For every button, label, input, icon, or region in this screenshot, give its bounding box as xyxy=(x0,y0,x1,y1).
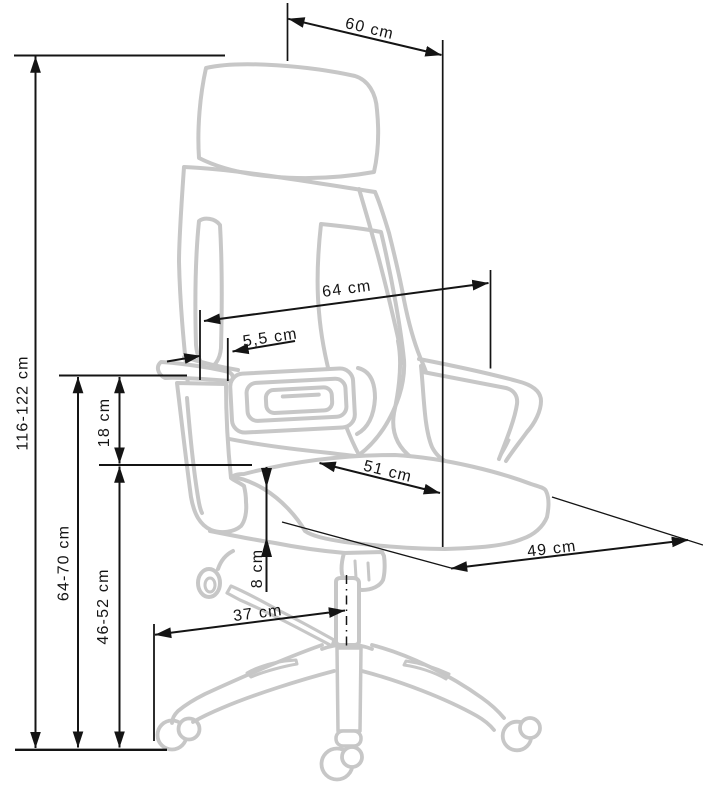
svg-text:46-52 cm: 46-52 cm xyxy=(95,568,112,644)
svg-text:64-70 cm: 64-70 cm xyxy=(56,525,73,601)
svg-text:8 cm: 8 cm xyxy=(249,549,266,588)
svg-text:116-122 cm: 116-122 cm xyxy=(15,355,32,450)
svg-text:18 cm: 18 cm xyxy=(96,398,113,448)
